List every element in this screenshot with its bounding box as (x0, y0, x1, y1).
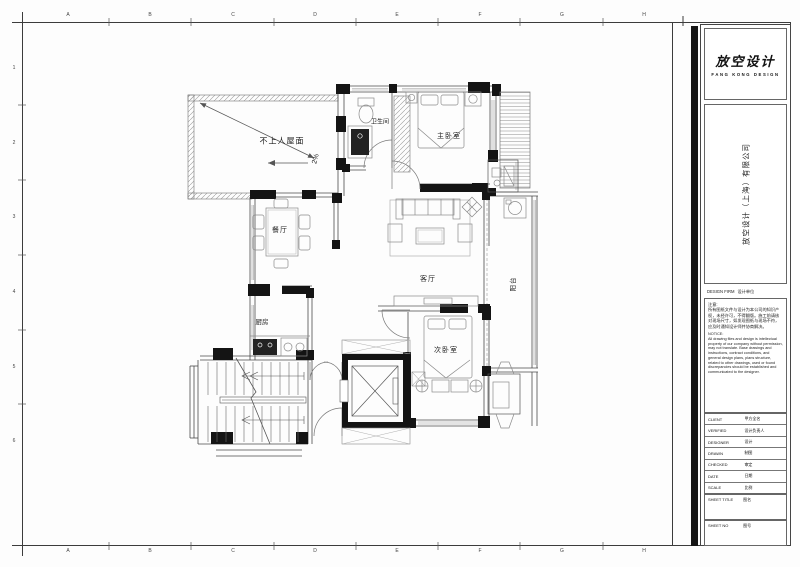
floorplan-drawing (0, 0, 800, 567)
sheet-title-zh: 图名 (743, 497, 751, 503)
sheet-title-en: SHEET TITLE (708, 497, 743, 503)
titleblock-divider-bar (691, 26, 698, 546)
grid-letter: B (148, 548, 151, 554)
design-firm-en: DESIGN FIRM (707, 289, 734, 294)
grid-letter: E (395, 12, 398, 18)
grid-letter: H (642, 12, 646, 18)
row-drawn: DRAWN 制图 (705, 448, 786, 459)
grid-letter: F (478, 12, 481, 18)
row-scale-en: SCALE (705, 485, 744, 490)
room-label-second: 次卧室 (434, 345, 458, 355)
row-designer-zh: 设计 (744, 439, 752, 445)
grid-letter: G (560, 12, 564, 18)
grid-letter: C (231, 548, 235, 554)
grid-number: 5 (13, 364, 16, 370)
logo-subtitle: FANG KONG DESIGN (711, 72, 779, 77)
row-checked-en: CHECKED (705, 462, 744, 467)
row-date: DATE 日期 (705, 471, 786, 482)
logo-title: 放空设计 (715, 51, 775, 70)
row-scale: SCALE 比例 (705, 483, 786, 493)
grid-letter: F (478, 548, 481, 554)
elevator (340, 340, 425, 444)
grid-number: 3 (13, 214, 16, 220)
room-label-roof: 不上人屋面 (260, 136, 305, 147)
row-drawn-zh: 制图 (744, 450, 752, 456)
room-label-balcony: 阳台 (507, 277, 517, 292)
sheet-no-en: SHEET NO (708, 523, 743, 529)
design-firm-zh: 设计单位 (737, 289, 754, 295)
grid-letter: H (642, 548, 646, 554)
row-verified-zh: 设计负责人 (744, 428, 764, 434)
row-drawn-en: DRAWN (705, 451, 744, 456)
grid-letter: D (313, 548, 317, 554)
row-designer-en: DESIGNER (705, 440, 744, 445)
sheet-title-box: SHEET TITLE 图名 (704, 494, 787, 520)
room-label-dining: 餐厅 (272, 225, 288, 235)
logo-box: 放空设计 FANG KONG DESIGN (704, 28, 787, 100)
sheet-no-box: SHEET NO 图号 (704, 520, 787, 546)
grid-number: 2 (13, 140, 16, 146)
grid-number: 1 (13, 65, 16, 71)
grid-letter: E (395, 548, 398, 554)
grid-letter: G (560, 548, 564, 554)
row-verified: VERIFIED 设计负责人 (705, 425, 786, 436)
grid-letter: B (148, 12, 151, 18)
grid-letter: A (66, 12, 69, 18)
grid-letter: C (231, 12, 235, 18)
room-label-bath: 卫生间 (371, 117, 389, 126)
project-name-box: 放空设计（上海）有限公司 (704, 104, 787, 284)
notes-zh: 所有图纸文件与设计为本公司的知识产权，未经许可，不得翻版。施工前请核对现场尺寸，… (708, 307, 783, 329)
notes-en: All drawing files and design is intellec… (708, 337, 783, 375)
row-checked: CHECKED 审定 (705, 460, 786, 471)
room-label-living: 客厅 (420, 274, 436, 284)
row-verified-en: VERIFIED (705, 428, 744, 433)
row-checked-zh: 审定 (744, 462, 752, 468)
roof-terrace (188, 95, 338, 199)
row-designer: DESIGNER 设计 (705, 437, 786, 448)
stairs (208, 358, 306, 444)
design-firm-row: DESIGN FIRM 设计单位 (704, 285, 787, 298)
sheet-no-zh: 图号 (743, 523, 751, 529)
row-date-en: DATE (705, 474, 744, 479)
grid-letter: A (66, 548, 69, 554)
row-scale-zh: 比例 (744, 485, 752, 491)
row-client-en: CLIENT (705, 417, 744, 422)
grid-number: 4 (13, 289, 16, 295)
drawing-sheet: A B C D E F G H A B C D E F G H 1 2 3 4 … (0, 0, 800, 567)
titleblock: 放空设计 FANG KONG DESIGN 放空设计（上海）有限公司 DESIG… (700, 24, 791, 546)
grid-letter: D (313, 12, 317, 18)
company-name: 放空设计（上海）有限公司 (740, 143, 751, 245)
room-label-kitchen: 厨房 (256, 316, 269, 326)
info-rows: CLIENT 甲方全名 VERIFIED 设计负责人 DESIGNER 设计 D… (704, 413, 787, 494)
row-client: CLIENT 甲方全名 (705, 414, 786, 425)
grid-number: 6 (13, 438, 16, 444)
room-label-master: 主卧室 (437, 131, 461, 141)
row-date-zh: 日期 (744, 473, 752, 479)
row-client-zh: 甲方全名 (744, 416, 760, 422)
notes-box: 注意: 所有图纸文件与设计为本公司的知识产权，未经许可，不得翻版。施工前请核对现… (704, 298, 787, 413)
sheet-frame (12, 12, 791, 556)
